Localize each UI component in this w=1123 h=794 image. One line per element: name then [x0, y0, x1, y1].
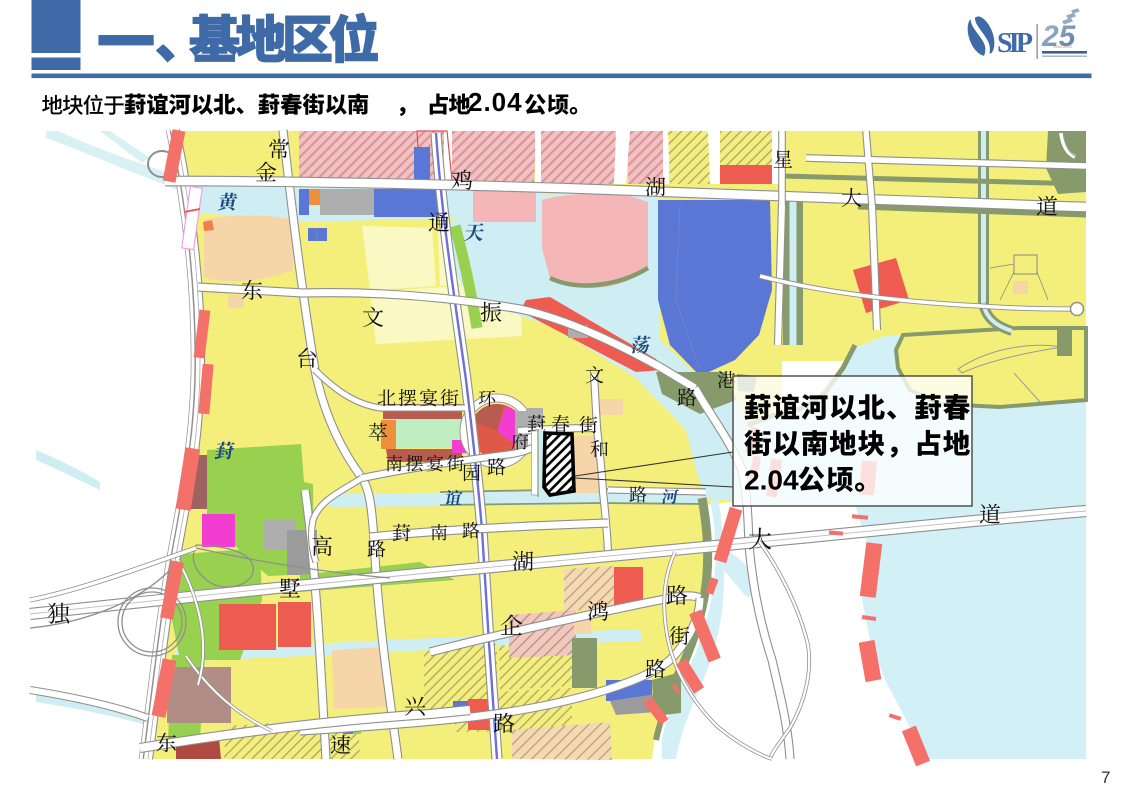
- svg-text:1994 2019: 1994 2019: [1053, 44, 1073, 49]
- svg-text:2.04: 2.04: [468, 87, 523, 117]
- svg-text:2.04: 2.04: [744, 464, 799, 495]
- svg-text:SIP: SIP: [997, 28, 1033, 59]
- svg-text:7: 7: [1101, 768, 1110, 787]
